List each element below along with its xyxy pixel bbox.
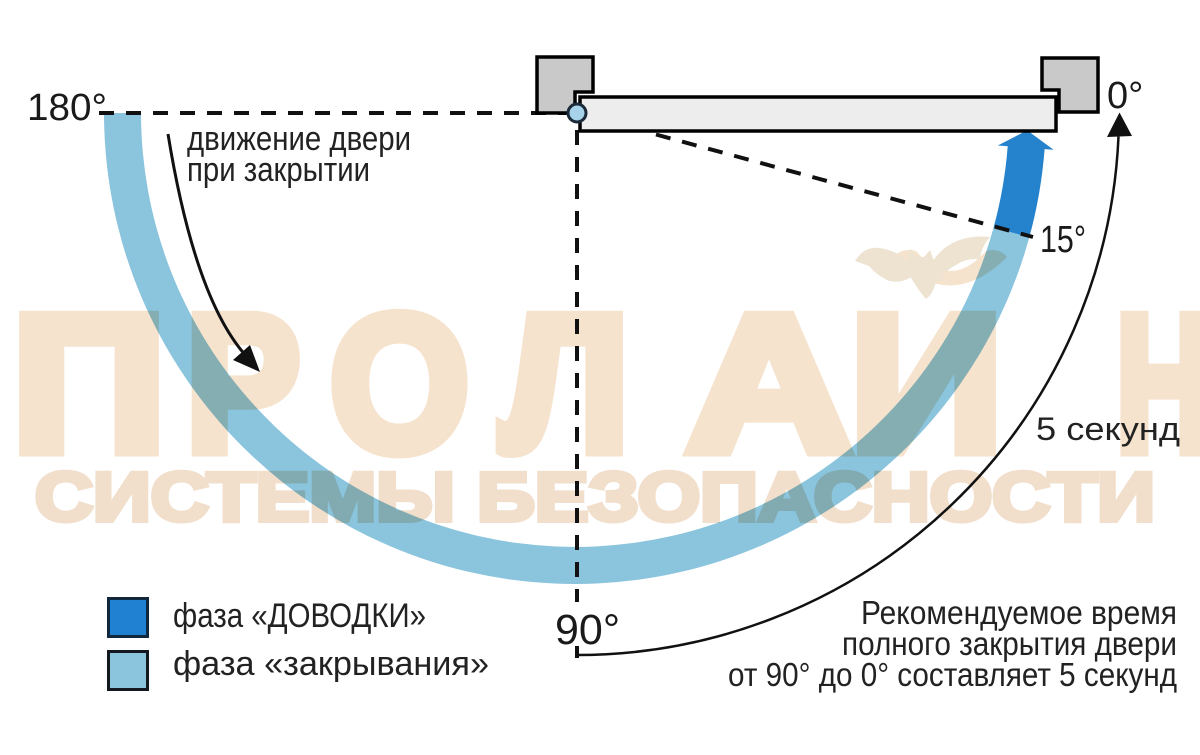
svg-text:при закрытии: при закрытии [187, 151, 370, 189]
svg-text:180°: 180° [27, 87, 107, 129]
svg-text:от 90° до 0° составляет 5 секу: от 90° до 0° составляет 5 секунд [728, 656, 1177, 693]
svg-text:90°: 90° [555, 606, 620, 654]
svg-text:0°: 0° [1107, 75, 1143, 117]
svg-text:фаза «ДОВОДКИ»: фаза «ДОВОДКИ» [173, 597, 426, 635]
svg-text:фаза «закрывания»: фаза «закрывания» [173, 645, 489, 683]
svg-text:СИСТЕМЫ БЕЗОПАСНОСТИ: СИСТЕМЫ БЕЗОПАСНОСТИ [35, 459, 1155, 536]
svg-text:15°: 15° [1040, 219, 1086, 261]
svg-text:5 секунд: 5 секунд [1036, 411, 1180, 447]
